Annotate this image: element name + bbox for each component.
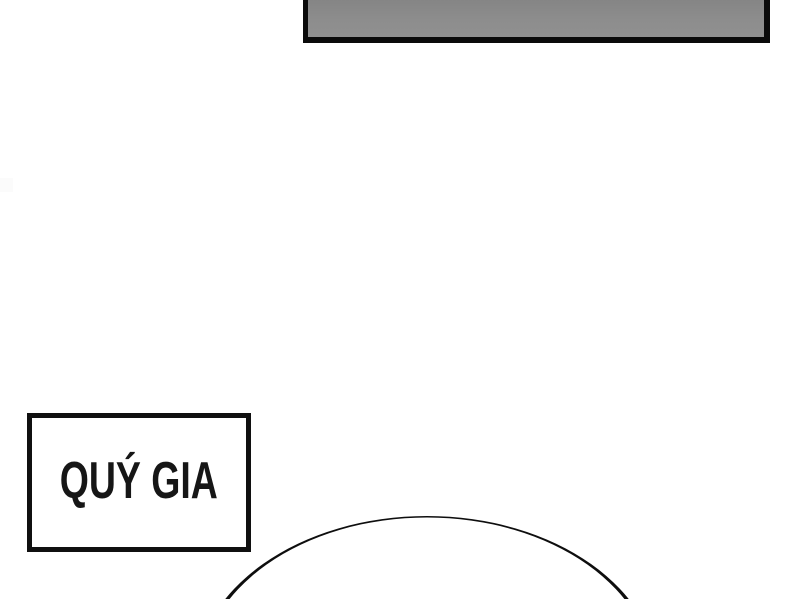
speech-bubble-outline xyxy=(180,505,670,599)
speech-bubble-path xyxy=(195,516,659,599)
comic-page: QUÝ GIA xyxy=(0,0,800,599)
left-edge-mark xyxy=(0,178,13,192)
top-gray-panel xyxy=(303,0,770,43)
caption-text: QUÝ GIA xyxy=(60,455,218,507)
